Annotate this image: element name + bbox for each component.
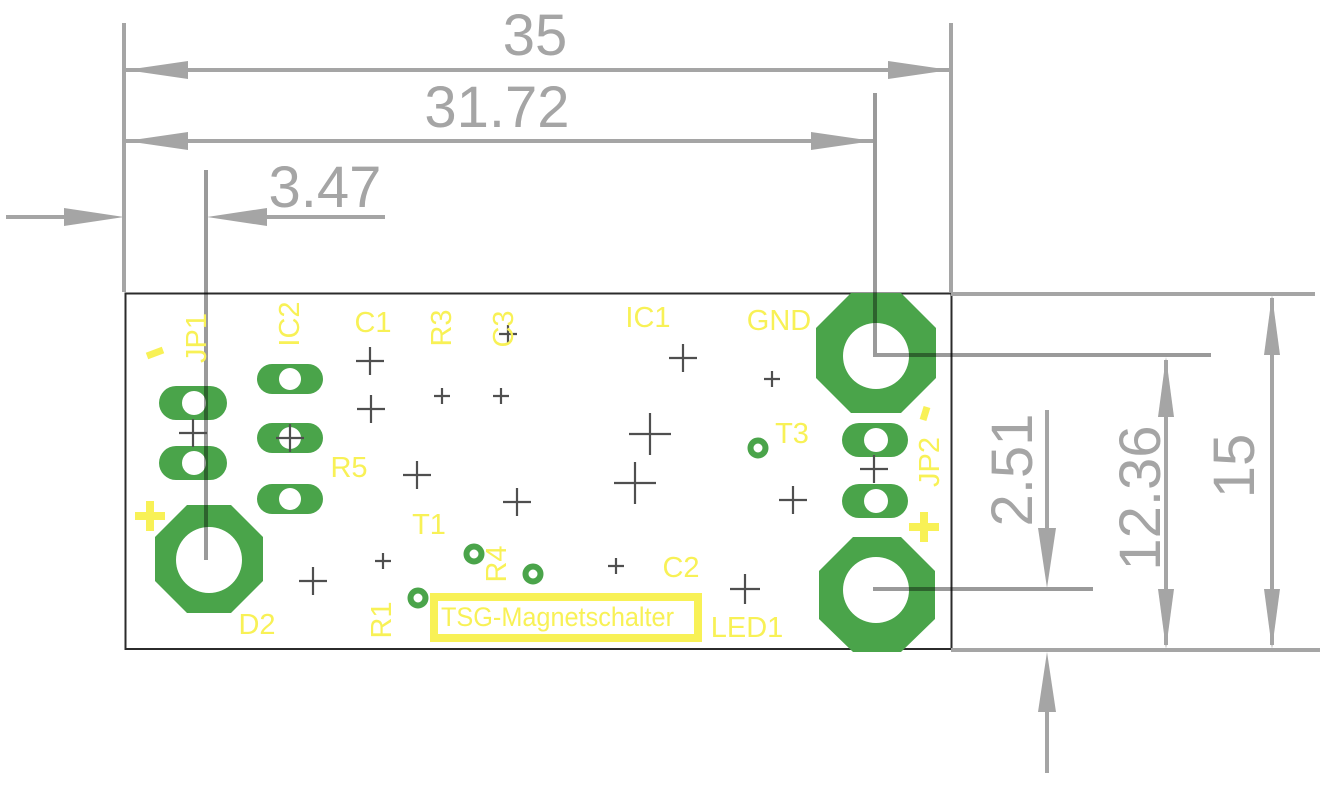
arrow-left-icon: [126, 61, 188, 79]
arrow-down-icon: [1264, 589, 1280, 649]
pad-jp1-1-hole: [182, 391, 206, 415]
silk-label-ic2: IC2: [274, 301, 306, 346]
dimension-led-hole-bottom: 2.51: [980, 410, 1056, 773]
via-r4-a: [467, 547, 482, 562]
silk-label-jp1: JP1: [181, 313, 213, 363]
dim-value-plus-hole-x: 3.47: [269, 155, 382, 220]
arrow-up-icon: [1264, 295, 1280, 355]
silk-label-t1: T1: [412, 509, 446, 541]
silk-label-gnd: GND: [747, 305, 811, 337]
arrow-down-icon: [1038, 528, 1056, 588]
silk-label-r4: R4: [481, 545, 513, 582]
via-t3: [751, 441, 766, 456]
pad-jp2-1-hole: [864, 428, 888, 452]
dim-value-gnd-hole-x: 31.72: [424, 75, 569, 140]
arrow-right-icon: [64, 208, 124, 226]
pad-ic2-3-hole: [279, 488, 301, 510]
arrow-up-icon: [1038, 652, 1056, 712]
dimension-total-height: 15: [1202, 295, 1280, 649]
silk-label-ic1: IC1: [625, 302, 670, 334]
pad-jp1-2-hole: [182, 451, 206, 475]
pad-d2-hole: [176, 527, 242, 593]
silk-label-led1: LED1: [711, 612, 784, 644]
silk-label-t3: T3: [775, 418, 809, 450]
dim-value-led-hole-bottom: 2.51: [980, 414, 1045, 527]
arrow-left-icon: [207, 208, 267, 226]
arrow-left-icon: [126, 132, 188, 150]
dimension-total-width: 35: [126, 3, 950, 79]
pcb-dimension-drawing: 35 31.72 3.47 2.51 12.36 15: [0, 0, 1320, 798]
silk-label-r3: R3: [426, 309, 458, 346]
arrow-down-icon: [1158, 589, 1174, 649]
pad-ic2-1-hole: [279, 368, 301, 390]
via-r1: [411, 591, 426, 606]
silk-label-c1: C1: [354, 307, 391, 339]
arrow-up-icon: [1158, 357, 1174, 417]
arrow-right-icon: [811, 132, 873, 150]
silk-label-r5: R5: [330, 452, 367, 484]
drawing-canvas: 35 31.72 3.47 2.51 12.36 15: [0, 0, 1320, 798]
silk-label-jp2: JP2: [914, 437, 946, 487]
silk-label-c3: C3: [488, 310, 520, 347]
silk-label-r1: R1: [366, 601, 398, 638]
silk-label-d2: D2: [238, 609, 275, 641]
pad-jp2-2-hole: [864, 489, 888, 513]
dim-value-total-width: 35: [503, 3, 568, 68]
silk-title-box-label: TSG-Magnetschalter: [441, 602, 674, 632]
dim-value-gnd-hole-bottom: 12.36: [1108, 425, 1173, 570]
via-r4-b: [526, 567, 541, 582]
arrow-right-icon: [888, 61, 950, 79]
silk-label-c2: C2: [662, 552, 699, 584]
minus-mark-right: [923, 407, 927, 420]
dimension-gnd-hole-bottom: 12.36: [1108, 357, 1174, 649]
dimension-plus-hole-x: 3.47: [6, 155, 385, 226]
dimension-gnd-hole-x: 31.72: [126, 75, 873, 150]
dim-value-total-height: 15: [1202, 434, 1267, 499]
